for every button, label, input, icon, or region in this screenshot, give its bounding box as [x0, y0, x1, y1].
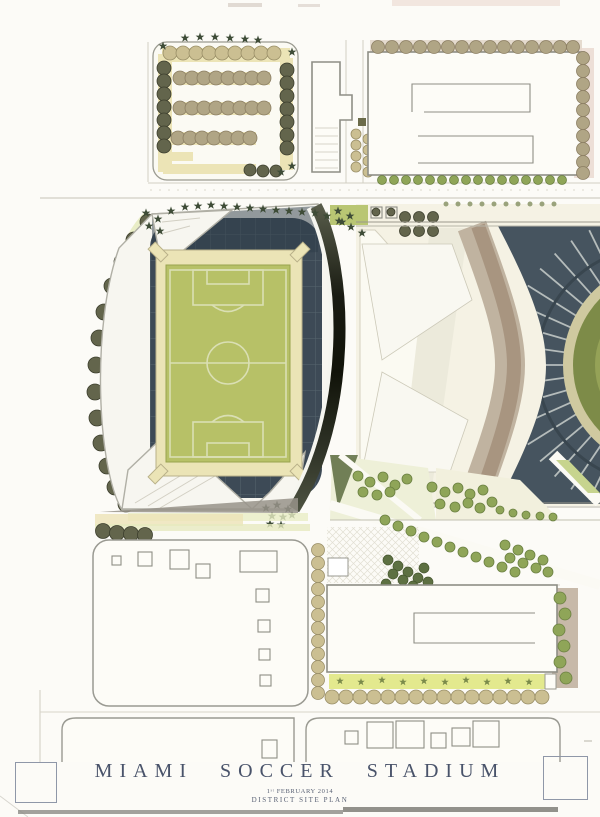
plan-type: DISTRICT SITE PLAN [0, 796, 600, 804]
site-plan-drawing [0, 0, 600, 817]
office-building-north [368, 40, 594, 185]
residential-block-southwest [93, 514, 310, 706]
annex-building [312, 62, 373, 177]
soccer-stadium [87, 200, 366, 528]
mixed-use-block-southeast [325, 585, 578, 704]
plan-subtitle: 1ˢᵗ FEBRUARY 2014 DISTRICT SITE PLAN [0, 788, 600, 804]
office-top-trees [372, 41, 580, 54]
plan-title: MIAMI SOCCER STADIUM [0, 760, 600, 783]
plan-date: 1ˢᵗ FEBRUARY 2014 [0, 788, 600, 795]
parking-row-trees [171, 71, 271, 145]
south-tree-row [325, 690, 549, 704]
title-block: MIAMI SOCCER STADIUM 1ˢᵗ FEBRUARY 2014 D… [0, 752, 600, 817]
south-street-trees [312, 544, 325, 700]
site-plan-sheet: MIAMI SOCCER STADIUM 1ˢᵗ FEBRUARY 2014 D… [0, 0, 600, 817]
parking-block [153, 32, 298, 180]
